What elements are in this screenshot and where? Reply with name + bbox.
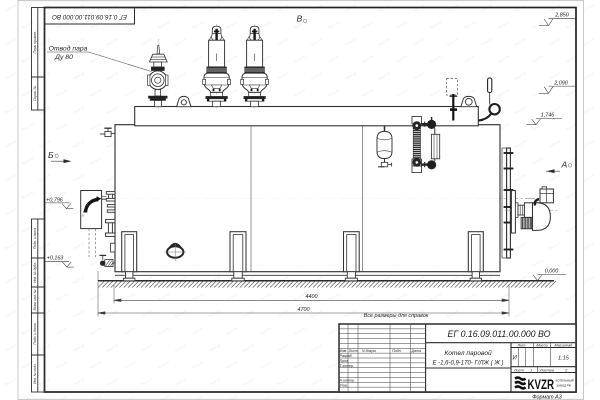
svg-text:И: И: [513, 356, 518, 362]
svg-text:N докум.: N докум.: [362, 349, 377, 353]
svg-text:Н.контр.: Н.контр.: [340, 378, 355, 382]
svg-text:Подп. и дата: Подп. и дата: [33, 323, 37, 344]
svg-text:Ду 80: Ду 80: [54, 54, 73, 61]
svg-text:Лист: Лист: [348, 349, 358, 353]
svg-text:Пров.: Пров.: [340, 359, 349, 363]
svg-text:Подп.: Подп.: [392, 349, 402, 353]
svg-text:Взам. инв. №: Взам. инв. №: [33, 289, 37, 310]
svg-text:ЕГ 0.16.09.011.00.000 ВО: ЕГ 0.16.09.011.00.000 ВО: [52, 13, 127, 20]
svg-text:1,746: 1,746: [541, 113, 555, 119]
svg-text:Масштаб: Масштаб: [555, 343, 574, 347]
svg-text:KVZR: KVZR: [528, 377, 555, 392]
svg-text:Т.контр.: Т.контр.: [340, 364, 355, 368]
svg-text:2,090: 2,090: [553, 80, 568, 86]
svg-text:Разраб.: Разраб.: [340, 354, 353, 358]
svg-text:КОТЕЛЬНЫЙ: КОТЕЛЬНЫЙ: [556, 379, 574, 383]
svg-text:+0,796: +0,796: [46, 197, 63, 203]
svg-text:Перв. примен.: Перв. примен.: [33, 31, 37, 54]
svg-text:Масса: Масса: [536, 343, 547, 347]
svg-text:Изм.: Изм.: [340, 349, 348, 353]
svg-text:ЕГ 0.16.09.011.00.000 ВО: ЕГ 0.16.09.011.00.000 ВО: [448, 328, 552, 339]
svg-text:Все размеры для справок: Все размеры для справок: [364, 313, 429, 319]
svg-text:Листов: Листов: [539, 368, 554, 372]
svg-text:1: 1: [530, 368, 532, 372]
svg-text:Подп. и дата: Подп. и дата: [33, 228, 37, 249]
svg-text:Формат А3: Формат А3: [532, 395, 562, 400]
svg-text:Утв.: Утв.: [340, 383, 348, 387]
svg-text:Справ. №: Справ. №: [33, 85, 37, 101]
svg-text:Б: Б: [48, 150, 54, 160]
svg-text:Лит.: Лит.: [517, 343, 527, 347]
svg-text:Отвод пара: Отвод пара: [49, 44, 88, 52]
svg-text:0,000: 0,000: [545, 269, 559, 275]
svg-text:В: В: [297, 14, 303, 24]
svg-text:ЗАВОД РФ: ЗАВОД РФ: [556, 383, 571, 387]
svg-text:+0,163: +0,163: [47, 256, 64, 262]
svg-text:Дата: Дата: [411, 349, 421, 353]
svg-text:Котел паровой: Котел паровой: [444, 349, 492, 357]
svg-text:4400: 4400: [306, 294, 318, 300]
svg-text:1:15: 1:15: [558, 356, 570, 362]
svg-text:Инв. № дубл.: Инв. № дубл.: [33, 262, 37, 283]
svg-text:Е -1,6-0,9-170- Г/ЛЖ ( Ж ): Е -1,6-0,9-170- Г/ЛЖ ( Ж ): [432, 361, 503, 367]
svg-text:2,850: 2,850: [554, 13, 569, 19]
svg-text:А: А: [561, 160, 568, 170]
svg-text:Инв. № подл.: Инв. № подл.: [33, 363, 37, 384]
svg-text:Лист: Лист: [513, 368, 524, 372]
svg-text:4700: 4700: [298, 307, 310, 313]
